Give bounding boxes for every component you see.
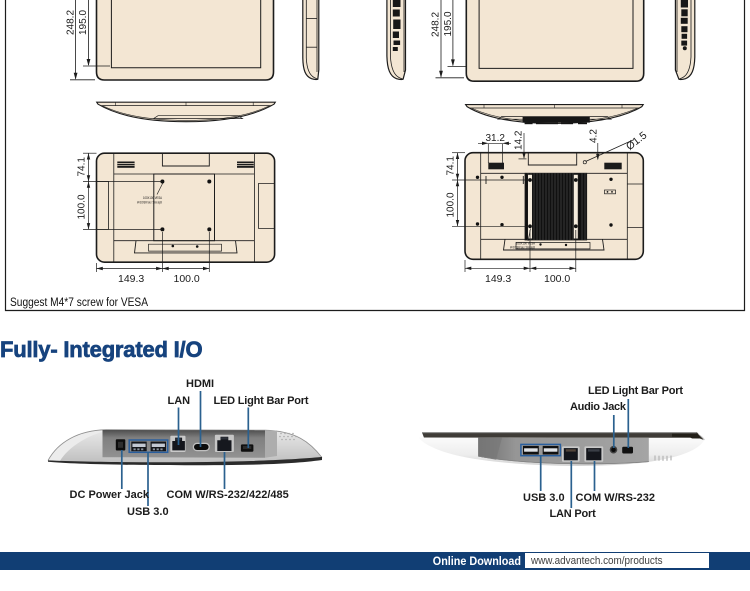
svg-text:M4 SCREW hole 7.0mm depth: M4 SCREW hole 7.0mm depth [137, 201, 162, 205]
svg-text:195.0: 195.0 [443, 11, 454, 36]
svg-text:100.0: 100.0 [77, 194, 88, 219]
svg-text:Ø1.5: Ø1.5 [624, 129, 649, 153]
svg-text:100.0: 100.0 [544, 273, 570, 285]
svg-text:248.2: 248.2 [431, 12, 442, 37]
svg-text:248.2: 248.2 [66, 10, 77, 35]
svg-text:14.2: 14.2 [514, 130, 525, 150]
svg-text:100.0: 100.0 [446, 192, 457, 217]
svg-text:74.1: 74.1 [77, 157, 88, 177]
svg-text:74.1: 74.1 [446, 156, 457, 176]
svg-text:195.0: 195.0 [78, 10, 89, 35]
svg-text:100X100 VESA: 100X100 VESA [143, 196, 163, 200]
svg-text:4.2: 4.2 [588, 129, 599, 143]
svg-text:100.0: 100.0 [174, 273, 200, 285]
svg-text:31.2: 31.2 [486, 133, 506, 144]
svg-text:149.3: 149.3 [485, 273, 511, 285]
svg-text:M4 SCREW hole 7.0mm depth: M4 SCREW hole 7.0mm depth [510, 246, 535, 250]
svg-text:Suggest M4*7 screw for VESA: Suggest M4*7 screw for VESA [10, 297, 148, 309]
svg-text:149.3: 149.3 [118, 273, 144, 285]
